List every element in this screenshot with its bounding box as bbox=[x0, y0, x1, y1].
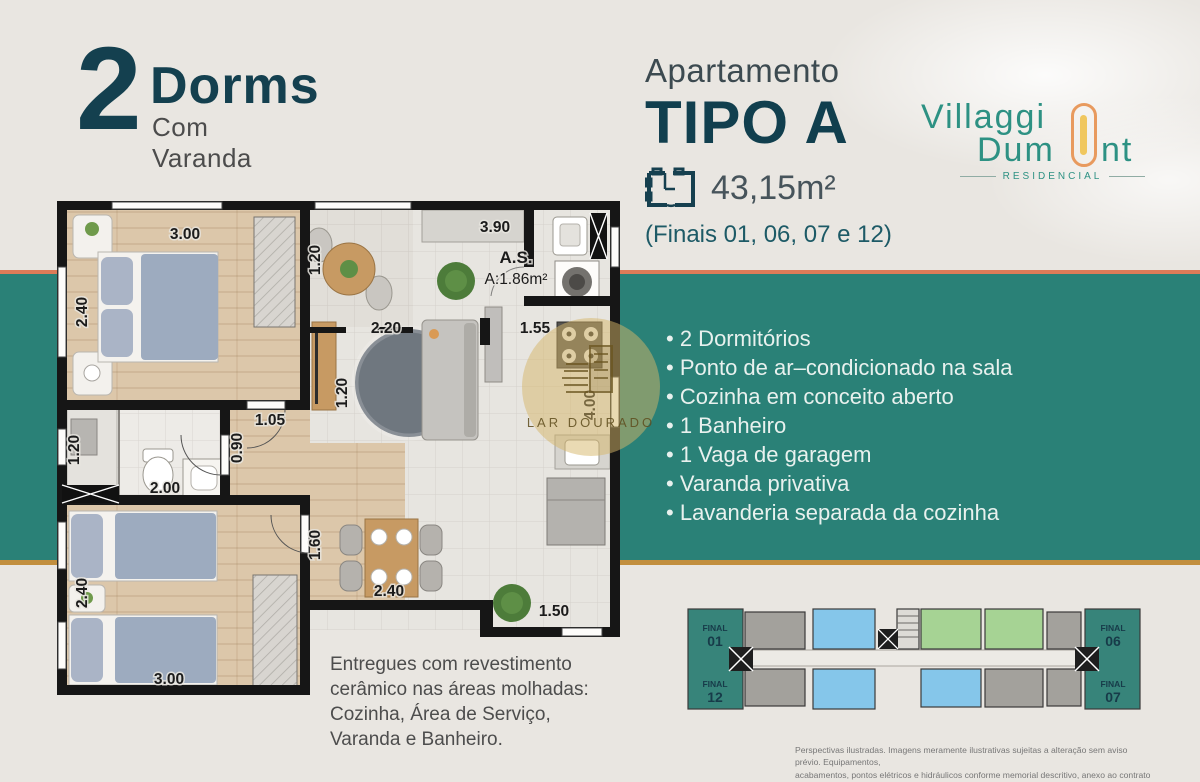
keyplan-final-12-label: FINAL bbox=[702, 679, 727, 689]
delivery-note: Entregues com revestimento cerâmico nas … bbox=[330, 652, 589, 752]
keyplan-final-12-number: 12 bbox=[707, 689, 723, 705]
dim-bed2-width: 3.00 bbox=[154, 671, 184, 688]
dim-hall-width: 1.05 bbox=[255, 412, 286, 429]
feature-item: Varanda privativa bbox=[666, 469, 1013, 498]
keyplan-final-07-number: 07 bbox=[1105, 689, 1121, 705]
keyplan-final-06-label: FINAL bbox=[1100, 623, 1125, 633]
apartment-title-block: Apartamento TIPO A 43,15m² (Finais 01, 0… bbox=[645, 52, 892, 249]
logo-door-icon bbox=[1071, 103, 1097, 167]
keyplan-final-01-label: FINAL bbox=[702, 623, 727, 633]
logo-word-2a: Dum bbox=[977, 131, 1055, 170]
feature-list: 2 Dormitórios Ponto de ar–condicionado n… bbox=[666, 324, 1013, 527]
legal-disclaimer: Perspectivas ilustradas. Imagens meramen… bbox=[795, 744, 1155, 782]
bedroom-count: 2 bbox=[76, 30, 140, 148]
feature-item: 1 Vaga de garagem bbox=[666, 440, 1013, 469]
dim-bath-width: 2.00 bbox=[150, 480, 180, 497]
dim-bed1-depth: 2.40 bbox=[74, 297, 91, 327]
keyplan-final-01-number: 01 bbox=[707, 633, 723, 649]
dim-living-width: 2.20 bbox=[371, 320, 401, 337]
label-servico-area: A:1.86m² bbox=[485, 271, 548, 288]
keyplan-final-07-label: FINAL bbox=[1100, 679, 1125, 689]
logo-tagline: RESIDENCIAL bbox=[960, 171, 1145, 182]
dim-service-width: 1.50 bbox=[539, 603, 569, 620]
building-keyplan: FINAL 01 FINAL 12 FINAL 06 FINAL 07 bbox=[685, 606, 1143, 717]
dim-bed2-depth: 2.40 bbox=[74, 578, 91, 608]
apartment-area: 43,15m² bbox=[711, 169, 836, 208]
logo-word-2b: nt bbox=[1101, 131, 1133, 170]
dim-kitchen-width: 1.55 bbox=[520, 320, 551, 337]
dim-varanda-width: 1.20 bbox=[307, 245, 324, 275]
balcony-subtitle: Com Varanda bbox=[152, 112, 252, 174]
feature-item: 1 Banheiro bbox=[666, 411, 1013, 440]
villaggio-dumont-logo: Villaggi Dum nt RESIDENCIAL bbox=[905, 95, 1165, 190]
dim-tv-wall: 1.20 bbox=[334, 378, 351, 408]
dim-bath-height: 1.20 bbox=[66, 435, 83, 465]
feature-item: Ponto de ar–condicionado na sala bbox=[666, 353, 1013, 382]
flyer-page: 2 Dorms Com Varanda Apartamento TIPO A 4… bbox=[0, 0, 1200, 782]
dim-dining-width: 2.40 bbox=[374, 583, 404, 600]
floorplan-icon bbox=[645, 165, 697, 211]
dim-dining-height: 1.60 bbox=[307, 530, 324, 560]
bedroom-count-label: Dorms bbox=[150, 56, 320, 116]
keyplan-final-06-number: 06 bbox=[1105, 633, 1121, 649]
feature-item: Cozinha em conceito aberto bbox=[666, 382, 1013, 411]
feature-item: 2 Dormitórios bbox=[666, 324, 1013, 353]
dim-hall-height: 0.90 bbox=[229, 433, 246, 463]
dim-right-height: 4.00 bbox=[582, 390, 599, 420]
feature-item: Lavanderia separada da cozinha bbox=[666, 498, 1013, 527]
apartment-type: TIPO A bbox=[645, 88, 892, 157]
apartment-kicker: Apartamento bbox=[645, 52, 892, 90]
floorplan-drawing: 3.00 2.40 1.20 3.90 2.20 A.S. A:1.86m² 1… bbox=[57, 197, 620, 700]
headline-left: 2 Dorms Com Varanda bbox=[76, 30, 140, 148]
dim-bed1-width: 3.00 bbox=[170, 226, 200, 243]
dim-kitchen-top: 3.90 bbox=[480, 219, 510, 236]
label-servico: A.S. bbox=[499, 248, 532, 267]
finals-note: (Finais 01, 06, 07 e 12) bbox=[645, 221, 892, 249]
